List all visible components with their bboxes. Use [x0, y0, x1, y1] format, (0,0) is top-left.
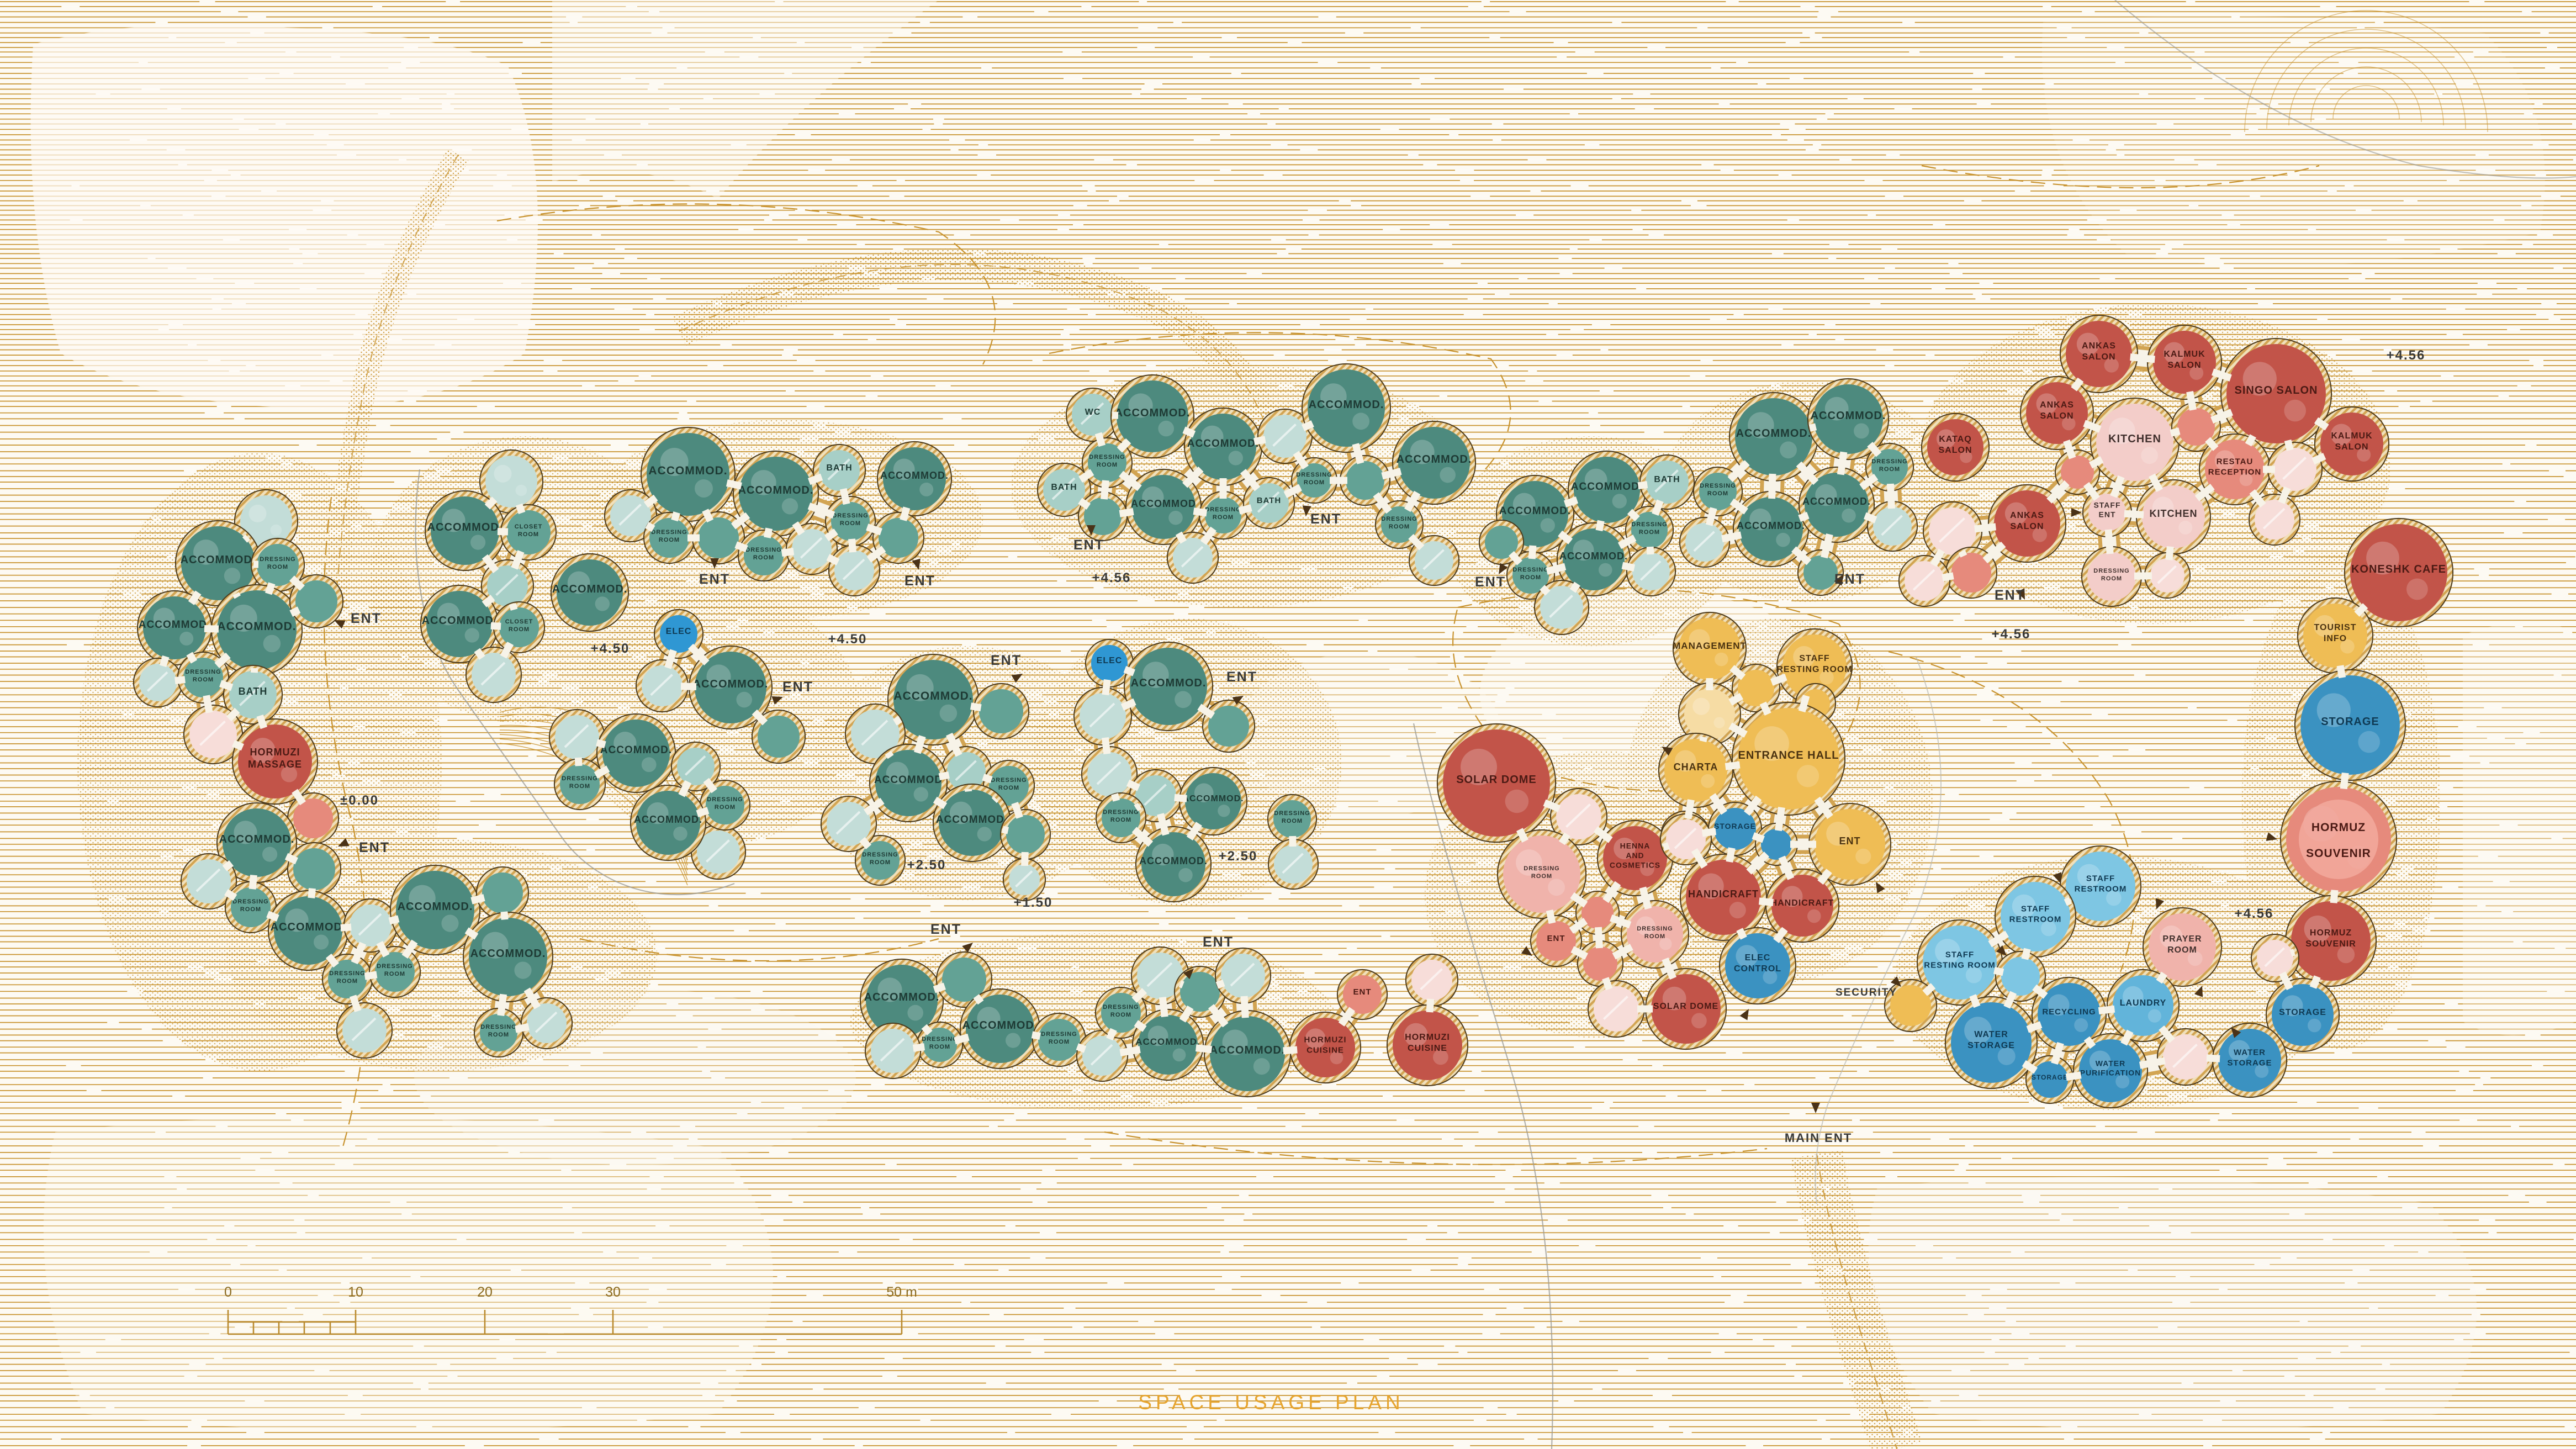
svg-text:50 m: 50 m — [886, 1284, 917, 1300]
svg-text:ACCOMMOD.: ACCOMMOD. — [552, 583, 628, 595]
svg-text:ACCOMMOD.: ACCOMMOD. — [600, 744, 672, 756]
svg-text:ACCOMMOD: ACCOMMOD — [874, 774, 943, 786]
svg-text:ACCOMMOD.: ACCOMMOD. — [1187, 438, 1259, 449]
svg-text:SECURITY: SECURITY — [1836, 987, 1897, 998]
svg-text:STORAGE: STORAGE — [1714, 822, 1756, 831]
svg-text:20: 20 — [477, 1284, 493, 1300]
svg-text:KITCHEN: KITCHEN — [2150, 508, 2198, 519]
svg-text:ACCOMMOD.: ACCOMMOD. — [1309, 399, 1384, 411]
svg-text:ENT: ENT — [1995, 588, 2025, 603]
svg-text:ENTRANCE HALL: ENTRANCE HALL — [1738, 749, 1839, 761]
svg-text:HANDICRAFT: HANDICRAFT — [1688, 889, 1759, 900]
svg-text:ENT: ENT — [699, 572, 730, 587]
svg-text:SPACE USAGE PLAN: SPACE USAGE PLAN — [1138, 1391, 1404, 1414]
svg-text:BATH: BATH — [1654, 475, 1680, 484]
svg-text:+4.56: +4.56 — [1992, 627, 2031, 642]
svg-text:ACCOMMOD.: ACCOMMOD. — [1559, 551, 1628, 562]
svg-text:ELEC: ELEC — [666, 627, 692, 636]
svg-text:0: 0 — [224, 1284, 232, 1300]
svg-text:SOLAR DOME: SOLAR DOME — [1456, 774, 1537, 786]
svg-text:BATH: BATH — [239, 686, 268, 697]
svg-text:ENT: ENT — [782, 679, 813, 695]
svg-text:±0.00: ±0.00 — [340, 793, 379, 808]
svg-text:ENT: ENT — [904, 573, 935, 589]
svg-text:LAUNDRY: LAUNDRY — [2120, 998, 2167, 1008]
svg-text:CLOSETROOM: CLOSETROOM — [515, 523, 543, 538]
svg-text:ACCOMMOD.: ACCOMMOD. — [422, 615, 498, 627]
svg-text:ENT: ENT — [1475, 574, 1506, 590]
svg-text:ENT: ENT — [1839, 835, 1861, 847]
svg-text:ACCOMMOD.: ACCOMMOD. — [1135, 1036, 1200, 1047]
svg-text:ACCOMMOD.: ACCOMMOD. — [864, 991, 940, 1003]
svg-text:+4.56: +4.56 — [2235, 906, 2274, 921]
svg-text:ACCOMMOD.: ACCOMMOD. — [962, 1019, 1038, 1032]
svg-text:ENT: ENT — [1073, 537, 1104, 553]
svg-text:ACCOMMOD.: ACCOMMOD. — [181, 554, 256, 566]
svg-text:ENT: ENT — [1547, 934, 1565, 943]
svg-text:ACCOMMOD.: ACCOMMOD. — [1499, 505, 1571, 517]
svg-text:+4.56: +4.56 — [2387, 348, 2426, 363]
svg-text:+4.56: +4.56 — [1092, 570, 1131, 585]
svg-text:ACCOMMOD.: ACCOMMOD. — [1737, 520, 1805, 531]
svg-text:ACCOMMOD.: ACCOMMOD. — [1802, 496, 1871, 507]
svg-text:ENT: ENT — [930, 922, 961, 937]
svg-text:ACCOMMOD.: ACCOMMOD. — [1571, 481, 1643, 493]
svg-text:SINGO SALON: SINGO SALON — [2234, 384, 2318, 396]
svg-text:KONESHK CAFE: KONESHK CAFE — [2351, 563, 2446, 575]
svg-text:BATH: BATH — [1051, 483, 1077, 492]
svg-text:ENT: ENT — [1203, 934, 1234, 950]
svg-text:SOUVENIR: SOUVENIR — [2306, 847, 2371, 860]
svg-text:CHARTA: CHARTA — [1674, 761, 1718, 773]
svg-text:ACCOMMOD.: ACCOMMOD. — [1182, 794, 1244, 803]
svg-text:ACCOMMOD.: ACCOMMOD. — [1139, 855, 1208, 866]
svg-text:30: 30 — [605, 1284, 621, 1300]
svg-text:ACCOMMOD.: ACCOMMOD. — [1115, 407, 1191, 419]
svg-text:ACCOMMOD.: ACCOMMOD. — [1397, 453, 1472, 466]
svg-text:HORMUZ: HORMUZ — [2311, 821, 2366, 834]
svg-text:ACCOMMOD.: ACCOMMOD. — [139, 619, 210, 631]
svg-text:RECYCLING: RECYCLING — [2042, 1007, 2096, 1017]
svg-text:ACCOMMOD.: ACCOMMOD. — [470, 948, 546, 960]
svg-text:ACCOMMOD.: ACCOMMOD. — [738, 484, 814, 496]
svg-text:10: 10 — [348, 1284, 363, 1300]
svg-text:KITCHEN: KITCHEN — [2108, 433, 2161, 445]
svg-text:ACCOMMOD.: ACCOMMOD. — [271, 921, 346, 933]
svg-text:STORAGE: STORAGE — [2321, 716, 2379, 728]
svg-text:+2.50: +2.50 — [907, 858, 946, 872]
svg-text:BATH: BATH — [1257, 496, 1282, 505]
svg-text:SOLAR DOME: SOLAR DOME — [1653, 1002, 1718, 1011]
svg-text:ACCOMMOD.: ACCOMMOD. — [893, 690, 972, 702]
svg-text:ENT: ENT — [1834, 572, 1865, 587]
svg-text:ACCOMMOD.: ACCOMMOD. — [880, 470, 949, 481]
svg-text:STORAGE: STORAGE — [2279, 1008, 2326, 1017]
svg-text:+2.50: +2.50 — [1219, 849, 1258, 864]
svg-text:ACCOMMOD.: ACCOMMOD. — [693, 678, 769, 690]
svg-text:BATH: BATH — [826, 463, 852, 473]
svg-text:ACCOMMOD.: ACCOMMOD. — [634, 814, 702, 825]
svg-text:ACCOMMOD.: ACCOMMOD. — [1131, 677, 1207, 689]
svg-text:MANAGEMENT: MANAGEMENT — [1673, 641, 1747, 651]
svg-text:HORMUZICUISINE: HORMUZICUISINE — [1304, 1035, 1347, 1055]
svg-text:STORAGE: STORAGE — [2032, 1073, 2068, 1081]
svg-text:WATERSTORAGE: WATERSTORAGE — [2228, 1048, 2272, 1068]
svg-text:ENT: ENT — [991, 653, 1022, 668]
svg-text:ACCOMMOD.: ACCOMMOD. — [1210, 1044, 1286, 1056]
svg-text:WC: WC — [1085, 408, 1101, 417]
svg-text:+4.50: +4.50 — [828, 632, 868, 647]
svg-text:ACCOMMOD.: ACCOMMOD. — [217, 620, 296, 633]
svg-text:ACCOMMOD.: ACCOMMOD. — [1736, 427, 1812, 440]
svg-text:ENT: ENT — [1310, 511, 1341, 527]
svg-text:ENT: ENT — [1226, 669, 1257, 685]
svg-text:HANDICRAFT: HANDICRAFT — [1771, 898, 1834, 908]
svg-text:+4.50: +4.50 — [591, 641, 630, 656]
svg-text:ACCOMMOD.: ACCOMMOD. — [219, 833, 295, 845]
svg-text:ACCOMMOD.: ACCOMMOD. — [1811, 410, 1886, 422]
svg-text:ACCOMMOD.: ACCOMMOD. — [648, 464, 727, 477]
svg-text:CLOSETROOM: CLOSETROOM — [505, 618, 533, 633]
svg-text:ACCOMMOD.: ACCOMMOD. — [936, 814, 1008, 826]
svg-text:ACCOMMOD.: ACCOMMOD. — [398, 901, 473, 913]
svg-text:MAIN ENT: MAIN ENT — [1785, 1131, 1852, 1145]
svg-text:ENT: ENT — [1353, 987, 1372, 997]
svg-text:ELEC: ELEC — [1097, 656, 1123, 665]
svg-text:ENT: ENT — [351, 611, 382, 626]
svg-text:ENT: ENT — [359, 840, 390, 855]
svg-text:ACCOMMOD: ACCOMMOD — [1131, 498, 1196, 509]
svg-text:ACCOMMOD.: ACCOMMOD. — [427, 521, 503, 533]
svg-text:+1.50: +1.50 — [1014, 895, 1053, 910]
